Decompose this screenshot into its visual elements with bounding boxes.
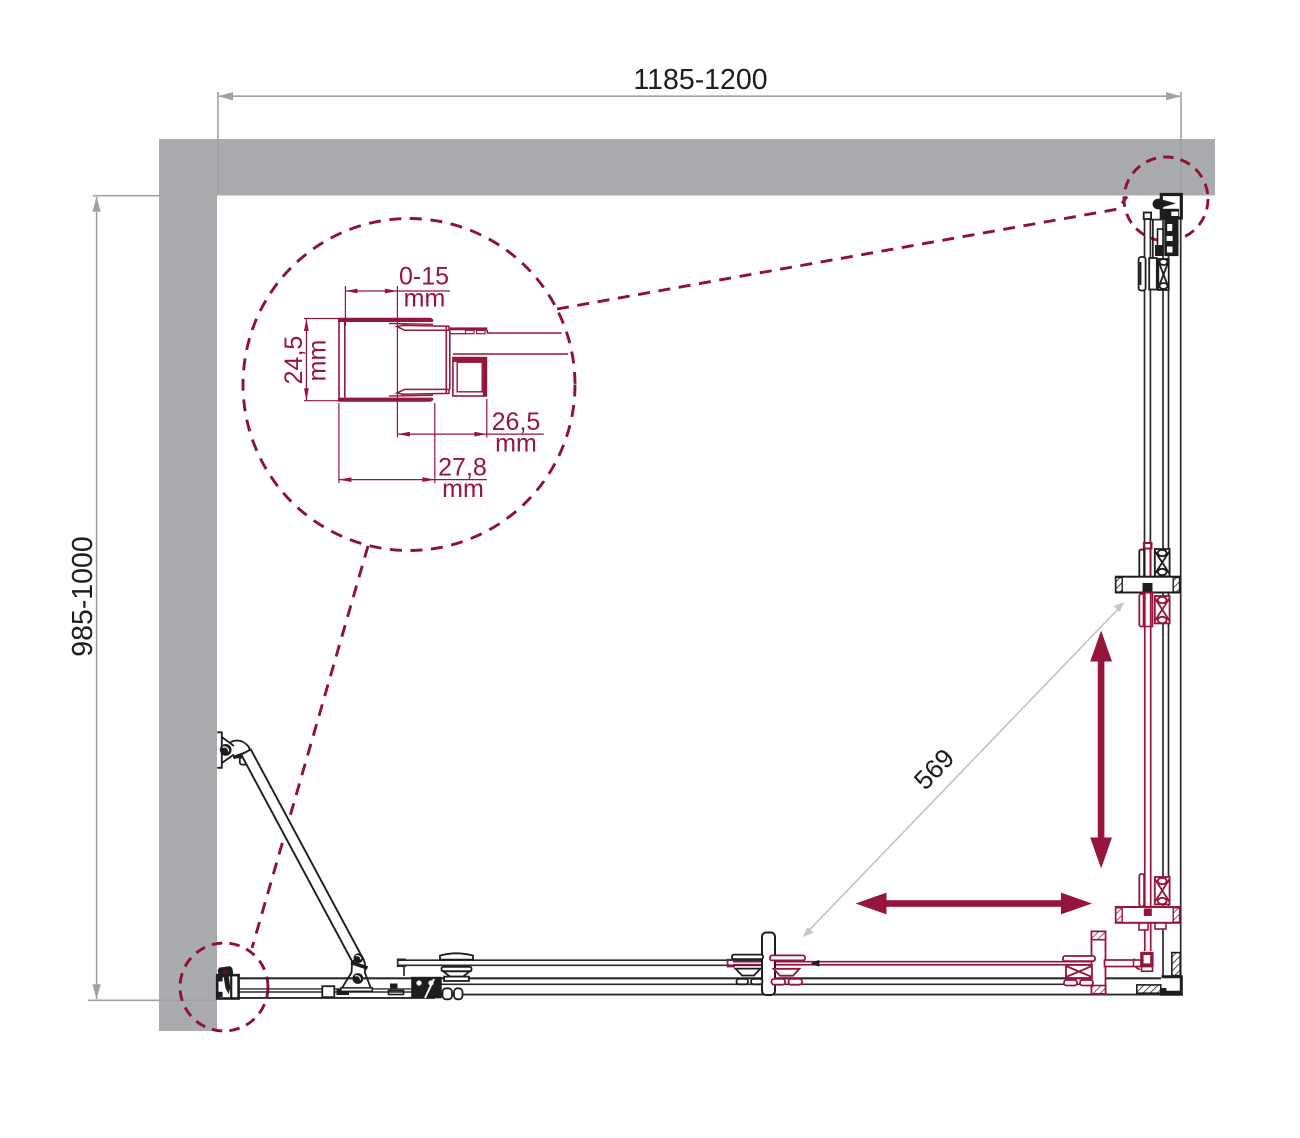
svg-text:985-1000: 985-1000 (67, 536, 99, 656)
svg-text:mm: mm (442, 475, 484, 503)
svg-text:mm: mm (304, 340, 332, 382)
svg-text:mm: mm (404, 285, 446, 313)
svg-text:mm: mm (495, 430, 537, 458)
svg-text:1185-1200: 1185-1200 (633, 64, 767, 96)
